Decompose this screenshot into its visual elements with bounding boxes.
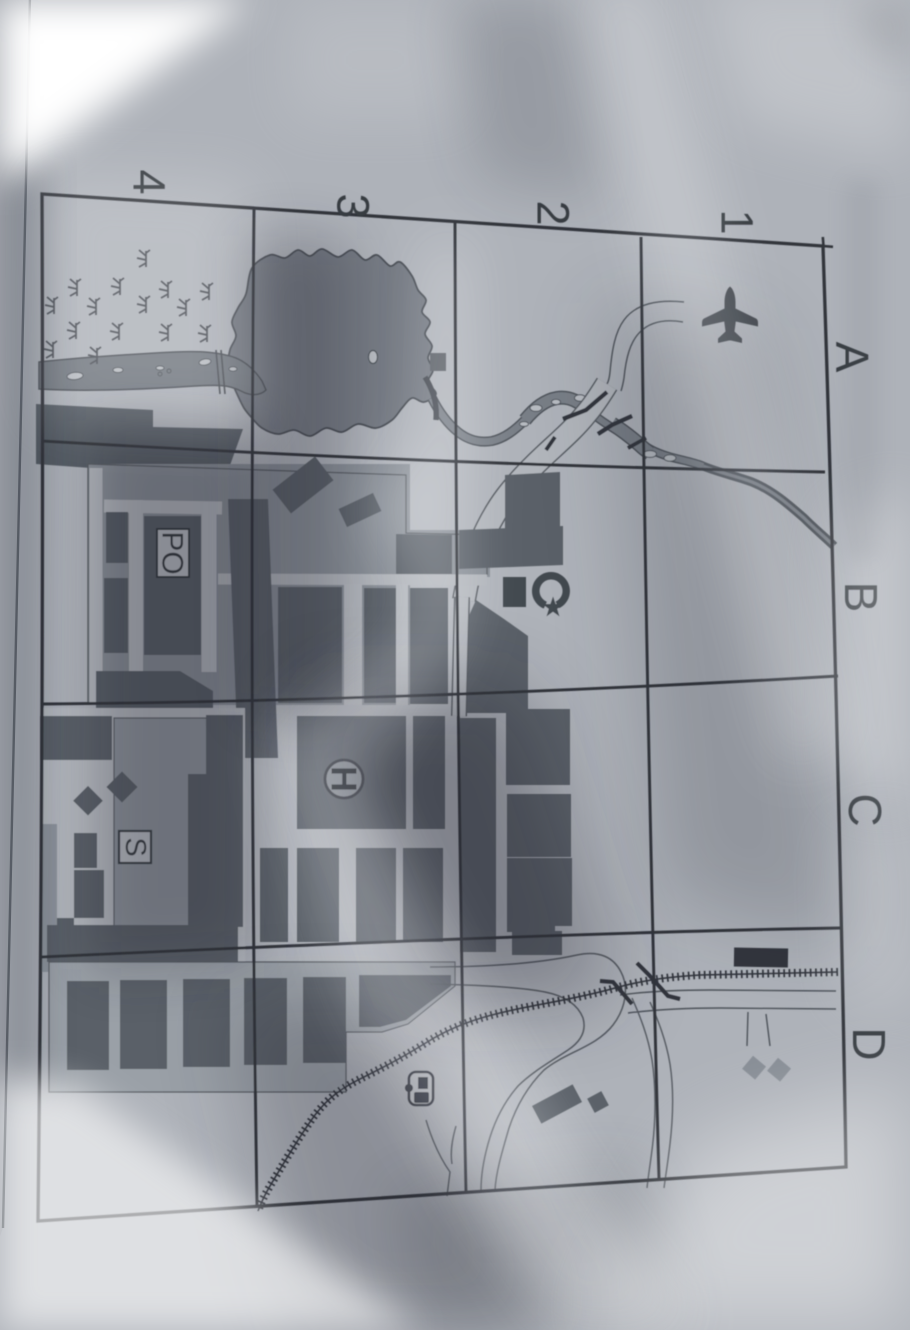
svg-text:3: 3 — [328, 193, 379, 218]
svg-text:D: D — [843, 1027, 895, 1060]
svg-text:2: 2 — [528, 200, 579, 225]
svg-text:C: C — [839, 793, 891, 826]
